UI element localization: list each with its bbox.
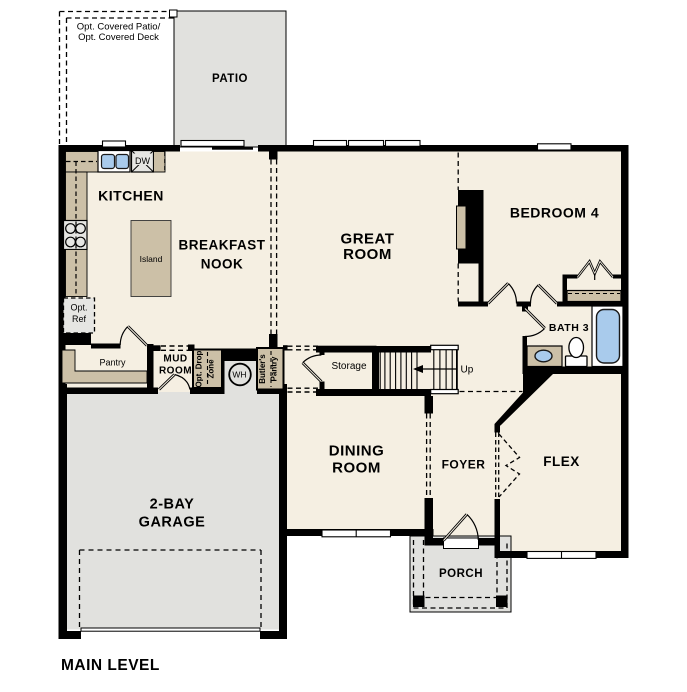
svg-text:ROOM: ROOM	[343, 246, 392, 263]
svg-text:BREAKFAST: BREAKFAST	[178, 238, 265, 253]
svg-text:PATIO: PATIO	[212, 73, 248, 85]
svg-text:PORCH: PORCH	[439, 568, 483, 580]
svg-text:Pantry: Pantry	[99, 358, 126, 368]
svg-text:BEDROOM 4: BEDROOM 4	[510, 205, 599, 221]
svg-text:NOOK: NOOK	[201, 257, 244, 272]
svg-text:Opt.: Opt.	[70, 303, 87, 313]
svg-text:Zone: Zone	[207, 359, 216, 379]
svg-text:KITCHEN: KITCHEN	[98, 188, 164, 204]
svg-text:WH: WH	[232, 370, 246, 380]
svg-text:Ref: Ref	[72, 314, 87, 324]
svg-text:GARAGE: GARAGE	[139, 515, 206, 531]
svg-text:FOYER: FOYER	[442, 458, 486, 472]
svg-text:ROOM: ROOM	[332, 460, 381, 477]
svg-text:MUD: MUD	[163, 354, 187, 365]
svg-text:Up: Up	[461, 365, 474, 376]
svg-text:Opt. Drop: Opt. Drop	[195, 350, 204, 387]
svg-text:Island: Island	[140, 254, 163, 264]
svg-text:FLEX: FLEX	[543, 454, 580, 469]
svg-text:Opt. Covered Patio/: Opt. Covered Patio/	[77, 22, 161, 33]
svg-text:2-BAY: 2-BAY	[150, 497, 195, 513]
svg-text:Pantry: Pantry	[270, 356, 279, 381]
svg-text:DW: DW	[135, 156, 150, 166]
svg-text:MAIN LEVEL: MAIN LEVEL	[61, 657, 160, 674]
svg-text:Storage: Storage	[331, 361, 366, 372]
svg-text:BATH 3: BATH 3	[549, 322, 589, 334]
svg-text:Opt. Covered Deck: Opt. Covered Deck	[78, 32, 159, 43]
svg-text:GREAT: GREAT	[341, 231, 395, 248]
svg-text:DINING: DINING	[329, 443, 385, 460]
svg-text:Butler's: Butler's	[258, 354, 267, 384]
